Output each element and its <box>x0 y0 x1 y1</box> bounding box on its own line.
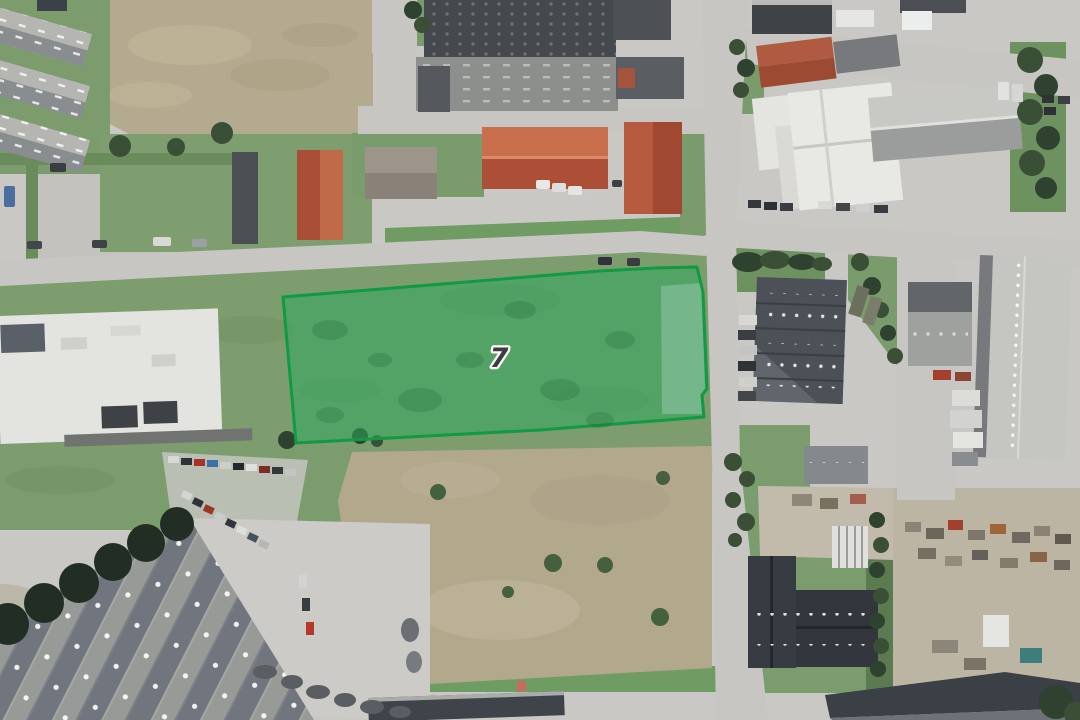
building-red-center <box>482 127 608 189</box>
building-skylights-east <box>753 277 847 404</box>
building-red-east <box>624 122 682 214</box>
building-gray-brown <box>365 147 437 199</box>
building-tall-warehouse-right <box>973 255 1072 460</box>
building-red-west <box>297 150 343 240</box>
building-mid-gray-east <box>908 282 972 366</box>
building-dark-narrow <box>232 152 258 244</box>
aerial-map-view[interactable]: 7 <box>0 0 1080 720</box>
parcel-label: 7 <box>490 343 509 374</box>
aerial-imagery: 7 <box>0 0 1080 720</box>
building-white-factory <box>0 307 252 449</box>
parcel-highlight-group: 7 <box>283 267 707 443</box>
building-white-small <box>832 526 868 568</box>
building-small-gray-east <box>804 446 868 484</box>
dry-fields <box>106 0 390 152</box>
